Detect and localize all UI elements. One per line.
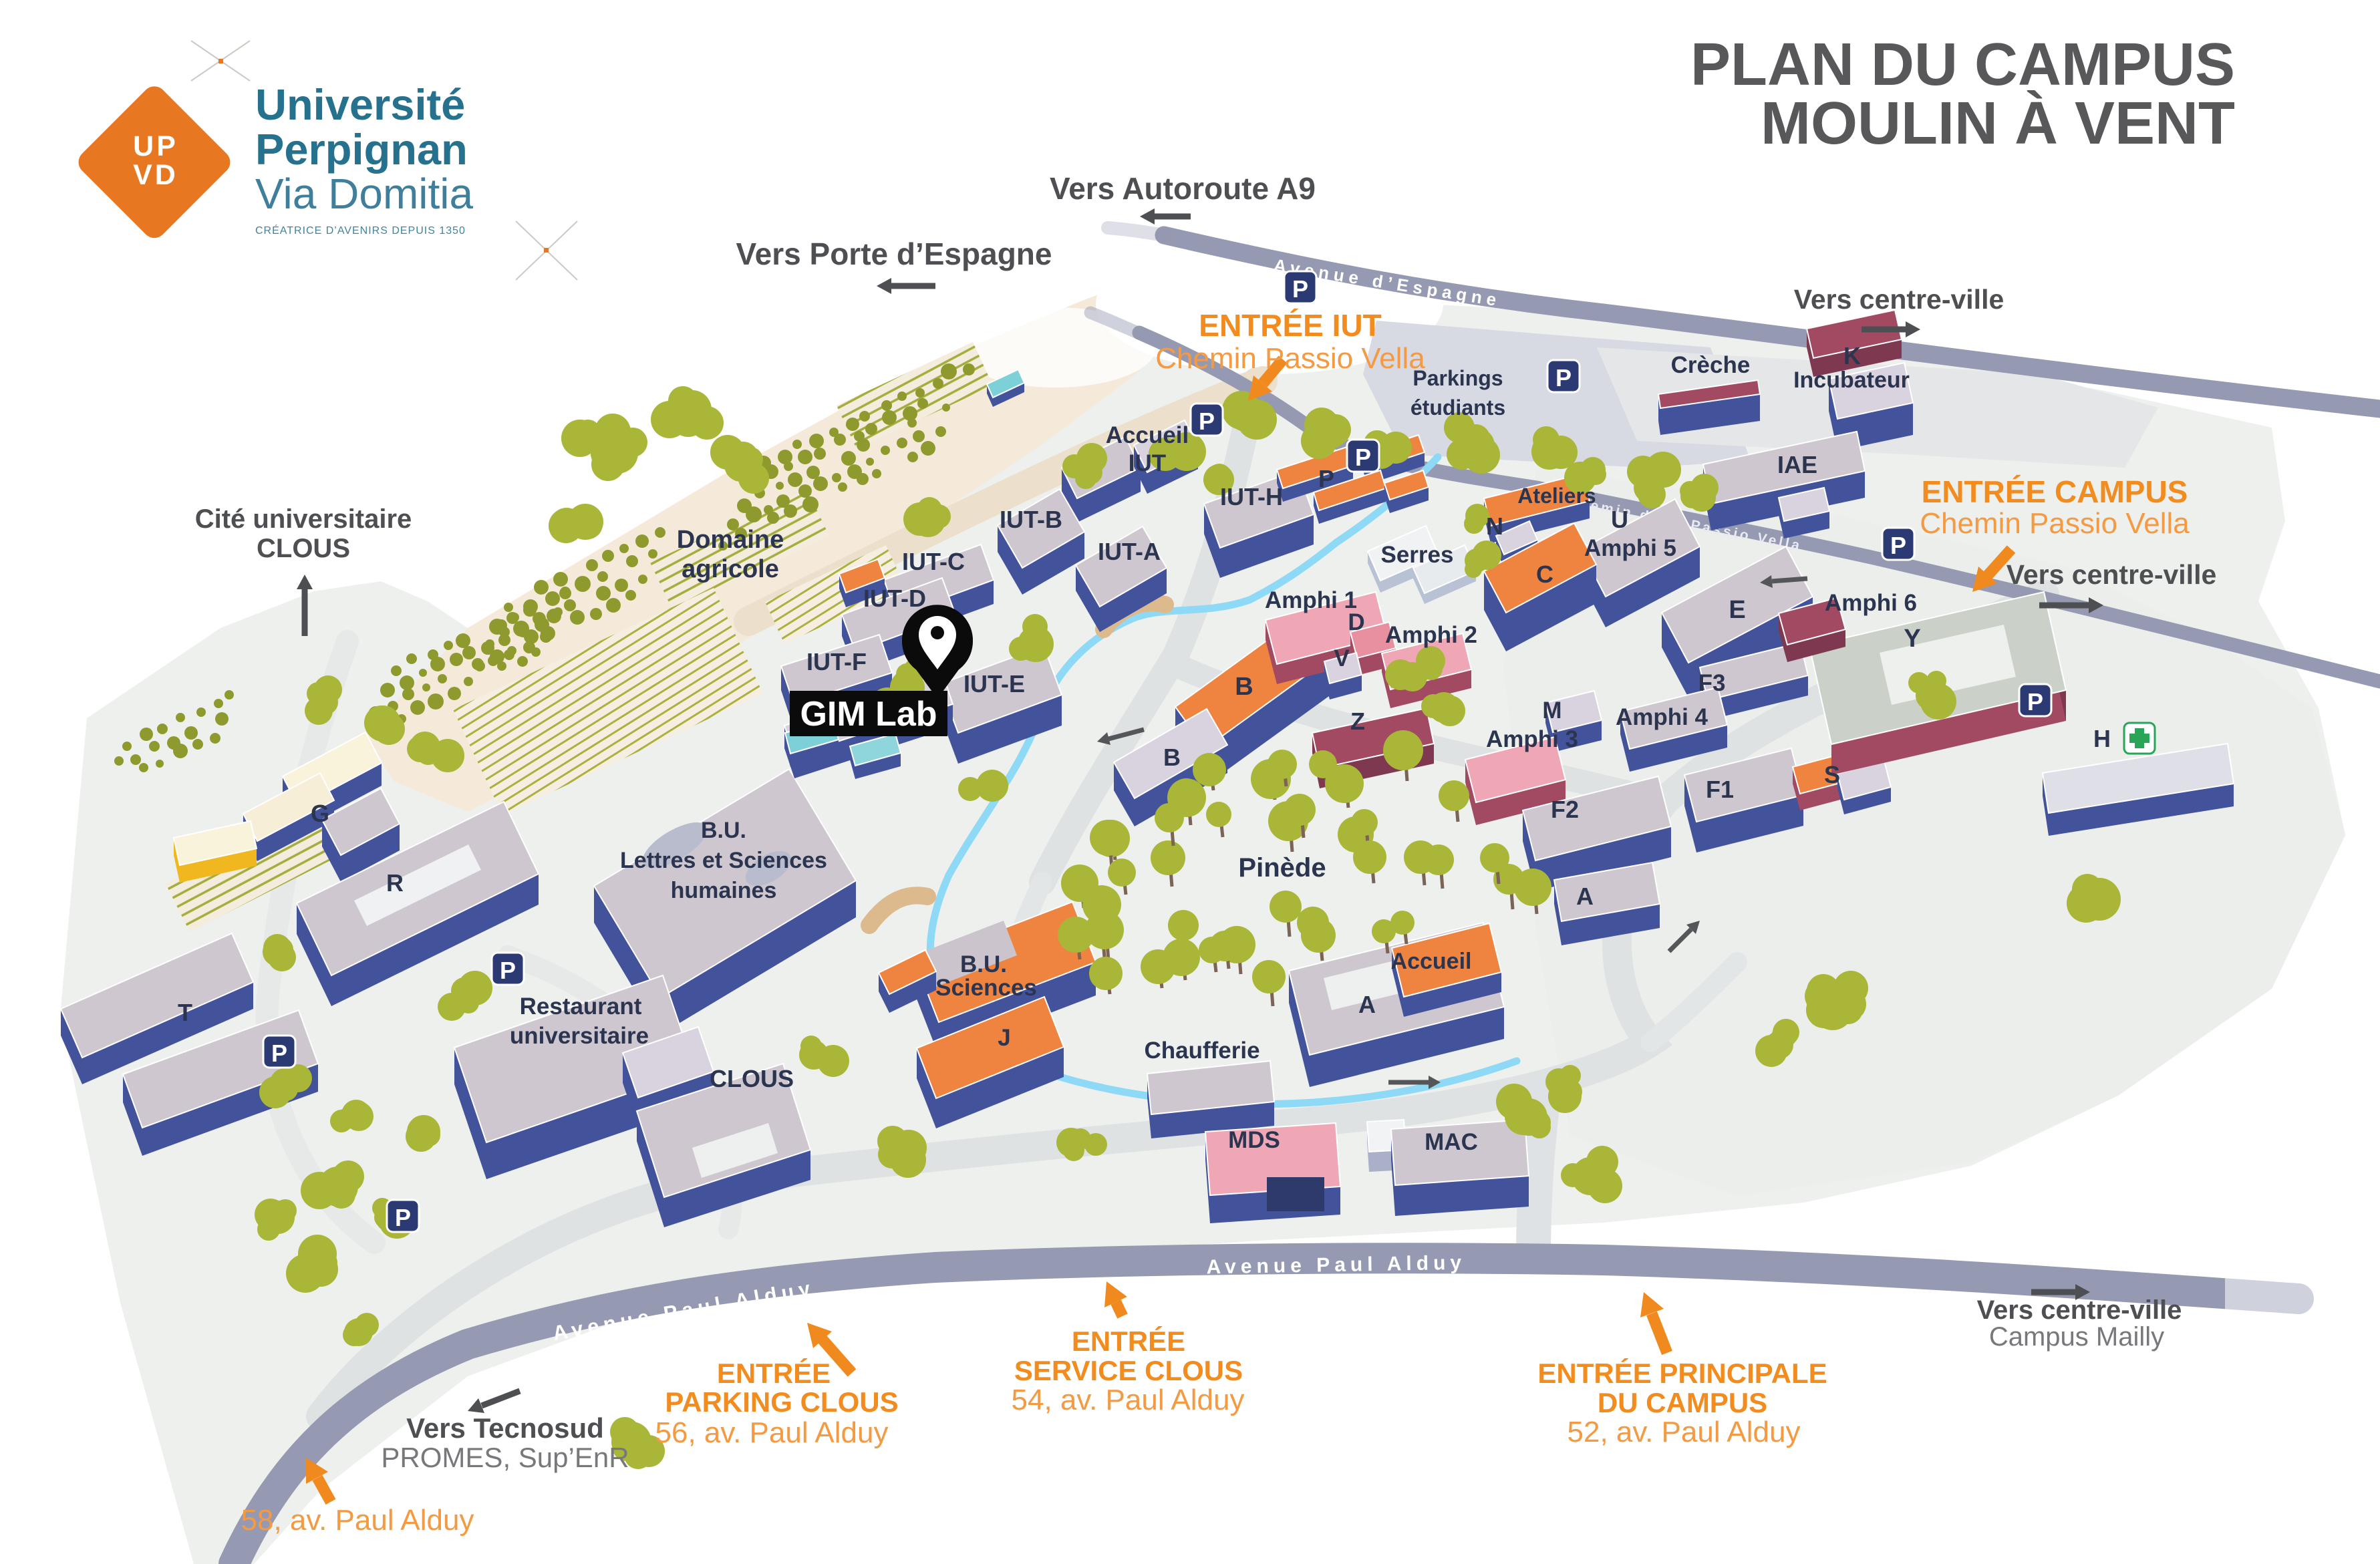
svg-text:GIM Lab: GIM Lab [800, 695, 937, 734]
svg-text:Pinède: Pinède [1238, 853, 1326, 883]
svg-text:SERVICE CLOUS: SERVICE CLOUS [1014, 1355, 1243, 1386]
svg-text:Serres: Serres [1381, 542, 1454, 568]
svg-text:T: T [178, 999, 192, 1026]
svg-text:P: P [2027, 688, 2043, 716]
svg-text:U: U [1611, 506, 1628, 533]
svg-text:E: E [1729, 596, 1745, 624]
svg-text:K: K [1843, 342, 1861, 369]
svg-text:R: R [386, 869, 404, 897]
svg-text:P: P [1318, 465, 1334, 492]
svg-text:Perpignan: Perpignan [255, 125, 468, 174]
svg-text:CLOUS: CLOUS [710, 1065, 794, 1092]
svg-text:56, av. Paul Alduy: 56, av. Paul Alduy [655, 1416, 889, 1449]
svg-text:Incubateur: Incubateur [1793, 367, 1910, 393]
svg-text:universitaire: universitaire [510, 1023, 649, 1049]
svg-text:P: P [1355, 444, 1371, 471]
svg-text:54, av. Paul Alduy: 54, av. Paul Alduy [1012, 1384, 1245, 1416]
svg-text:Z: Z [1350, 708, 1365, 735]
svg-text:IUT-D: IUT-D [863, 585, 926, 612]
svg-text:PROMES, Sup’EnR: PROMES, Sup’EnR [381, 1442, 629, 1473]
svg-text:Cité universitaire: Cité universitaire [195, 504, 412, 534]
svg-text:Vers Tecnosud: Vers Tecnosud [406, 1412, 604, 1444]
svg-text:UP: UP [133, 130, 178, 162]
svg-text:ENTRÉE IUT: ENTRÉE IUT [1199, 308, 1381, 343]
svg-text:Vers Porte d’Espagne: Vers Porte d’Espagne [736, 237, 1052, 271]
svg-text:Avenue Paul Alduy: Avenue Paul Alduy [1206, 1252, 1466, 1279]
svg-text:Ateliers: Ateliers [1517, 484, 1596, 508]
svg-text:IUT: IUT [1129, 450, 1166, 476]
svg-text:Sciences: Sciences [935, 975, 1037, 1001]
svg-text:Accueil: Accueil [1391, 949, 1472, 974]
svg-text:CLOUS: CLOUS [257, 534, 350, 563]
svg-text:MDS: MDS [1228, 1127, 1280, 1153]
svg-text:ENTRÉE: ENTRÉE [1072, 1325, 1185, 1357]
svg-text:ENTRÉE: ENTRÉE [717, 1358, 831, 1389]
svg-text:IUT-F: IUT-F [806, 648, 867, 675]
svg-text:C: C [1536, 561, 1553, 588]
svg-text:Lettres et Sciences: Lettres et Sciences [620, 848, 827, 873]
svg-text:Vers centre-ville: Vers centre-ville [1977, 1295, 2182, 1325]
svg-text:Amphi 6: Amphi 6 [1825, 590, 1917, 616]
svg-text:N: N [1486, 512, 1503, 540]
svg-text:Amphi 3: Amphi 3 [1486, 726, 1578, 752]
svg-text:Amphi 1: Amphi 1 [1265, 587, 1357, 613]
svg-text:P: P [271, 1040, 287, 1067]
svg-text:F3: F3 [1698, 670, 1726, 696]
svg-text:Restaurant: Restaurant [520, 993, 642, 1020]
svg-text:52, av. Paul Alduy: 52, av. Paul Alduy [1568, 1416, 1801, 1448]
svg-text:IUT-E: IUT-E [963, 670, 1025, 697]
svg-text:M: M [1542, 697, 1561, 724]
svg-text:J: J [998, 1025, 1010, 1051]
svg-text:F1: F1 [1706, 776, 1734, 803]
svg-text:Chemin Passio Vella: Chemin Passio Vella [1155, 342, 1425, 375]
svg-text:MAC: MAC [1425, 1129, 1478, 1155]
svg-text:Y: Y [1904, 625, 1920, 653]
svg-text:humaines: humaines [671, 878, 777, 903]
svg-text:Amphi 2: Amphi 2 [1385, 622, 1477, 648]
svg-text:IUT-A: IUT-A [1098, 538, 1161, 565]
svg-text:Chemin Passio Vella: Chemin Passio Vella [1920, 507, 2190, 540]
svg-text:B: B [1163, 744, 1181, 771]
svg-text:IUT-H: IUT-H [1220, 483, 1283, 510]
svg-text:Campus Mailly: Campus Mailly [1989, 1322, 2164, 1352]
svg-text:P: P [1292, 275, 1308, 303]
svg-text:F2: F2 [1551, 796, 1579, 823]
svg-text:Via Domitia: Via Domitia [255, 170, 473, 218]
svg-text:MOULIN À VENT: MOULIN À VENT [1761, 90, 2235, 157]
svg-text:Crèche: Crèche [1671, 352, 1751, 378]
svg-text:CRÉATRICE D’AVENIRS DEPUIS 135: CRÉATRICE D’AVENIRS DEPUIS 1350 [255, 224, 466, 237]
svg-text:VD: VD [133, 159, 178, 191]
svg-text:V: V [1334, 645, 1350, 671]
svg-text:B.U.: B.U. [701, 818, 746, 843]
svg-text:58, av. Paul Alduy: 58, av. Paul Alduy [241, 1504, 474, 1537]
svg-text:PARKING CLOUS: PARKING CLOUS [665, 1386, 898, 1418]
svg-text:IAE: IAE [1777, 451, 1817, 478]
svg-text:ENTRÉE CAMPUS: ENTRÉE CAMPUS [1922, 474, 2188, 509]
svg-text:Vers centre-ville: Vers centre-ville [1794, 284, 2004, 315]
svg-text:B: B [1235, 673, 1253, 701]
svg-text:Chaufferie: Chaufferie [1144, 1038, 1259, 1064]
svg-text:PLAN DU CAMPUS: PLAN DU CAMPUS [1690, 31, 2235, 98]
svg-text:Amphi 4: Amphi 4 [1616, 704, 1708, 730]
svg-text:D: D [1348, 609, 1364, 635]
svg-text:H: H [2093, 725, 2111, 752]
svg-text:Accueil: Accueil [1106, 422, 1189, 448]
svg-text:Parkings: Parkings [1412, 366, 1503, 390]
svg-text:Domaine: Domaine [677, 526, 784, 554]
svg-text:Vers Autoroute A9: Vers Autoroute A9 [1050, 171, 1316, 206]
svg-text:DU CAMPUS: DU CAMPUS [1598, 1387, 1767, 1418]
svg-text:Vers centre-ville: Vers centre-ville [2006, 559, 2217, 590]
svg-text:P: P [395, 1204, 411, 1231]
svg-text:Amphi 5: Amphi 5 [1584, 535, 1676, 561]
svg-text:P: P [500, 957, 516, 984]
svg-text:S: S [1824, 761, 1840, 788]
svg-text:étudiants: étudiants [1410, 396, 1505, 420]
svg-text:P: P [1555, 364, 1572, 392]
svg-text:P: P [1890, 532, 1906, 559]
svg-text:B.U.: B.U. [960, 951, 1007, 977]
svg-text:A: A [1576, 883, 1594, 910]
svg-text:agricole: agricole [682, 555, 779, 583]
svg-text:G: G [311, 800, 329, 827]
svg-text:A: A [1358, 991, 1376, 1018]
svg-text:ENTRÉE PRINCIPALE: ENTRÉE PRINCIPALE [1537, 1358, 1827, 1389]
svg-text:P: P [1199, 408, 1215, 435]
svg-text:IUT-B: IUT-B [1000, 506, 1062, 533]
svg-text:IUT-C: IUT-C [902, 548, 965, 575]
svg-text:Université: Université [255, 80, 465, 129]
